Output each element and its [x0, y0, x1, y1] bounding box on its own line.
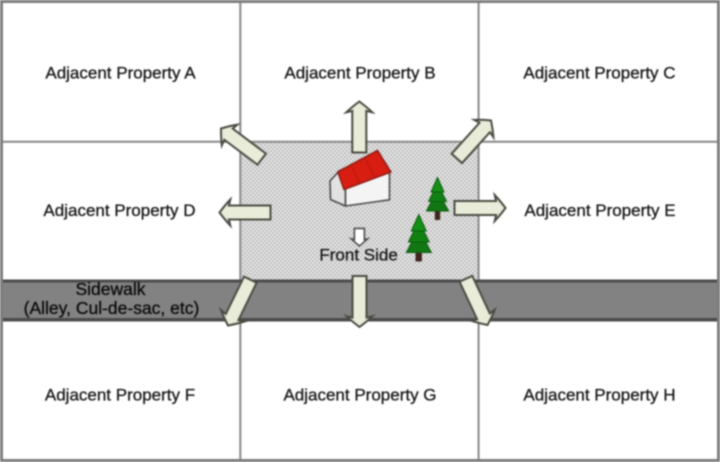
svg-text:(Alley, Cul-de-sac, etc): (Alley, Cul-de-sac, etc) — [24, 298, 200, 318]
svg-text:Adjacent Property D: Adjacent Property D — [43, 201, 195, 220]
svg-text:Adjacent Property A: Adjacent Property A — [45, 64, 196, 83]
svg-text:Adjacent Property C: Adjacent Property C — [523, 64, 675, 83]
svg-text:Adjacent Property E: Adjacent Property E — [524, 201, 675, 220]
svg-text:Adjacent Property H: Adjacent Property H — [523, 386, 675, 405]
svg-text:Adjacent Property F: Adjacent Property F — [45, 386, 195, 405]
svg-text:Front Side: Front Side — [319, 246, 397, 265]
svg-text:Adjacent Property B: Adjacent Property B — [284, 64, 435, 83]
svg-text:Sidewalk: Sidewalk — [75, 279, 145, 299]
svg-text:Adjacent Property G: Adjacent Property G — [283, 386, 436, 405]
